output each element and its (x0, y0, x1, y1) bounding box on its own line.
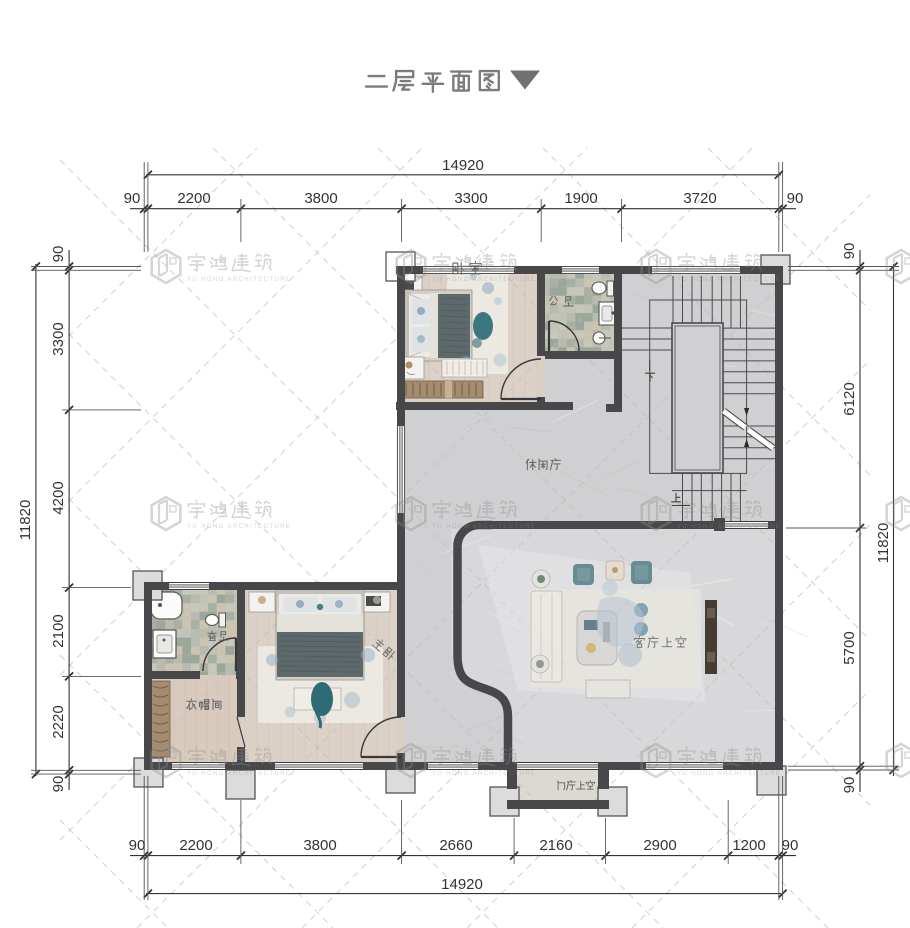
svg-text:2200: 2200 (177, 190, 210, 207)
svg-text:1200: 1200 (732, 837, 765, 854)
svg-text:3800: 3800 (303, 837, 336, 854)
svg-text:2660: 2660 (439, 837, 472, 854)
svg-text:4200: 4200 (50, 481, 67, 514)
svg-text:2220: 2220 (50, 705, 67, 738)
svg-text:90: 90 (129, 837, 146, 854)
svg-text:YU HONG ARCHITECTURE: YU HONG ARCHITECTURE (677, 524, 781, 530)
svg-text:6120: 6120 (841, 382, 858, 415)
svg-text:2160: 2160 (539, 837, 572, 854)
svg-text:2100: 2100 (50, 614, 67, 647)
svg-text:2200: 2200 (179, 837, 212, 854)
svg-text:YU HONG ARCHITECTURE: YU HONG ARCHITECTURE (432, 277, 536, 283)
svg-text:90: 90 (787, 190, 804, 207)
svg-text:3800: 3800 (304, 190, 337, 207)
svg-text:3300: 3300 (50, 322, 67, 355)
svg-text:YU HONG ARCHITECTURE: YU HONG ARCHITECTURE (677, 277, 781, 283)
svg-text:90: 90 (782, 837, 799, 854)
svg-text:14920: 14920 (442, 157, 484, 174)
svg-text:3300: 3300 (454, 190, 487, 207)
svg-text:YU HONG ARCHITECTURE: YU HONG ARCHITECTURE (187, 524, 291, 530)
svg-text:11820: 11820 (17, 500, 34, 541)
svg-text:2900: 2900 (643, 837, 676, 854)
svg-text:YU HONG ARCHITECTURE: YU HONG ARCHITECTURE (187, 771, 291, 777)
svg-text:11820: 11820 (875, 523, 892, 564)
svg-text:YU HONG ARCHITECTURE: YU HONG ARCHITECTURE (432, 524, 536, 530)
svg-text:90: 90 (124, 190, 141, 207)
svg-text:1900: 1900 (564, 190, 597, 207)
svg-text:YU HONG ARCHITECTURE: YU HONG ARCHITECTURE (432, 771, 536, 777)
svg-text:14920: 14920 (441, 876, 483, 893)
svg-text:3720: 3720 (683, 190, 716, 207)
svg-text:YU HONG ARCHITECTURE: YU HONG ARCHITECTURE (677, 771, 781, 777)
svg-text:90: 90 (841, 243, 858, 260)
svg-text:YU HONG ARCHITECTURE: YU HONG ARCHITECTURE (187, 277, 291, 283)
svg-text:5700: 5700 (841, 631, 858, 664)
svg-text:90: 90 (50, 776, 67, 793)
svg-text:90: 90 (50, 246, 67, 263)
svg-text:90: 90 (841, 777, 858, 794)
